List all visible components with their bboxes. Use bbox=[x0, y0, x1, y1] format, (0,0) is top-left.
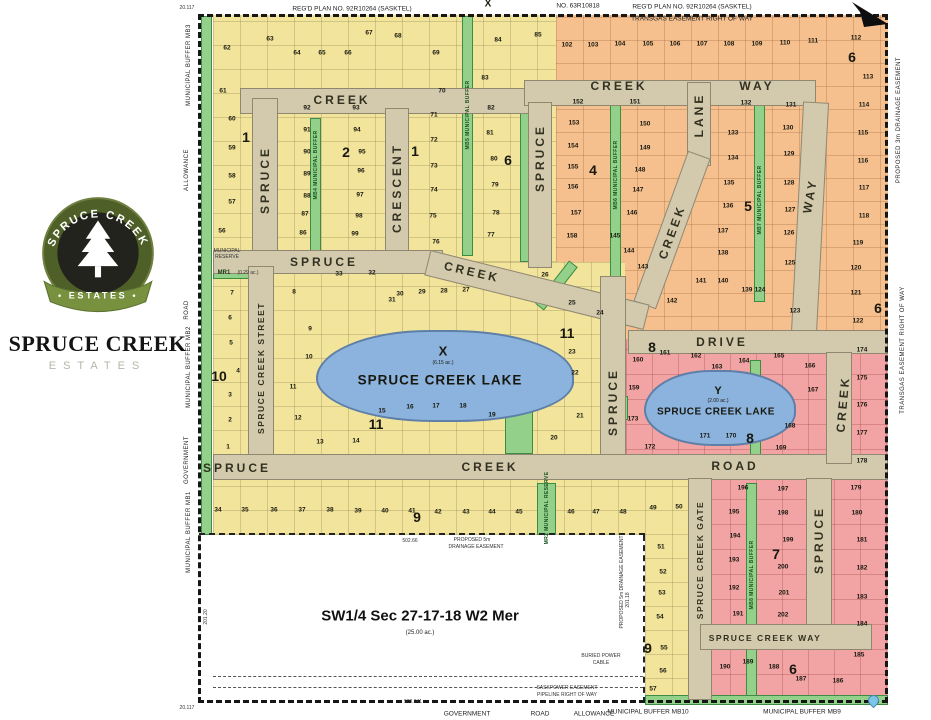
lot-number: 186 bbox=[833, 678, 844, 685]
lot-number: 16 bbox=[406, 404, 413, 411]
lot-number: 120 bbox=[851, 265, 862, 272]
lot-number: 13 bbox=[316, 439, 323, 446]
lot-number: 64 bbox=[293, 50, 300, 57]
lot-number: 71 bbox=[430, 112, 437, 119]
lot-number: 97 bbox=[356, 192, 363, 199]
lot-number: 141 bbox=[696, 278, 707, 285]
lot-number: 31 bbox=[388, 297, 395, 304]
annotation: REG'D PLAN NO. 92R10264 (SASKTEL) bbox=[632, 4, 751, 11]
lot-number: 56 bbox=[659, 668, 666, 675]
lot-number: 143 bbox=[638, 264, 649, 271]
lot-number: 30 bbox=[396, 291, 403, 298]
lot-number: 26 bbox=[541, 272, 548, 279]
street-label: SPRUCE bbox=[606, 368, 620, 436]
lot-number: 78 bbox=[492, 210, 499, 217]
lot-number: 176 bbox=[857, 402, 868, 409]
street-label: WAY bbox=[739, 79, 774, 93]
annotation: 20.117 bbox=[180, 5, 195, 11]
lot-number: 75 bbox=[429, 213, 436, 220]
lot-number: 140 bbox=[718, 278, 729, 285]
lot-number: 106 bbox=[670, 41, 681, 48]
lot-number: 44 bbox=[488, 509, 495, 516]
lot-number: 19 bbox=[488, 412, 495, 419]
lot-number: 196 bbox=[738, 485, 749, 492]
lot-number: 6 bbox=[228, 315, 232, 322]
annotation: PIPELINE RIGHT OF WAY bbox=[537, 692, 597, 698]
lot-number: 151 bbox=[630, 99, 641, 106]
lot-number: 118 bbox=[859, 213, 870, 220]
lot-number: 178 bbox=[857, 458, 868, 465]
lot-number: 132 bbox=[741, 100, 752, 107]
annotation: 503.041 bbox=[404, 699, 422, 705]
lot-number: 94 bbox=[353, 127, 360, 134]
lot-number: 42 bbox=[434, 509, 441, 516]
lot-number: 34 bbox=[214, 507, 221, 514]
street-label: SPRUCE bbox=[812, 506, 826, 574]
lot-number: 90 bbox=[303, 149, 310, 156]
logo-badge-icon: SPRUCE CREEK • ESTATES • bbox=[32, 190, 164, 322]
lot-number: 73 bbox=[430, 163, 437, 170]
annotation: MUNICIPAL BUFFER MB10 bbox=[607, 709, 688, 716]
lot-number: 14 bbox=[352, 438, 359, 445]
lot-number: 83 bbox=[481, 75, 488, 82]
lot-number: 82 bbox=[487, 105, 494, 112]
block-number: 7 bbox=[772, 546, 780, 562]
lot-number: 15 bbox=[378, 408, 385, 415]
lot-number: 93 bbox=[352, 105, 359, 112]
lot-number: 74 bbox=[430, 187, 437, 194]
lot-number: 29 bbox=[418, 289, 425, 296]
lot-number: 156 bbox=[568, 184, 579, 191]
lot-number: 193 bbox=[729, 557, 740, 564]
lot-number: 119 bbox=[853, 240, 864, 247]
lot-number: 115 bbox=[858, 130, 869, 137]
lot-number: 57 bbox=[649, 686, 656, 693]
lot-number: 173 bbox=[628, 416, 639, 423]
annotation: MB8 MUNICIPAL BUFFER bbox=[749, 541, 755, 610]
lot-number: 104 bbox=[615, 41, 626, 48]
block-number: 4 bbox=[589, 162, 597, 178]
street-label: CREEK bbox=[590, 79, 647, 93]
lot-number: 124 bbox=[755, 287, 766, 294]
lot-number: 27 bbox=[462, 287, 469, 294]
street-label: SPRUCE bbox=[203, 461, 271, 475]
lot-number: 85 bbox=[534, 32, 541, 39]
logo-ribbon-text: • ESTATES • bbox=[57, 291, 137, 301]
lot-number: 142 bbox=[667, 298, 678, 305]
street-label: CREEK bbox=[313, 93, 370, 107]
lot-number: 166 bbox=[805, 363, 816, 370]
lot-number: 17 bbox=[432, 403, 439, 410]
lot-number: 9 bbox=[308, 326, 312, 333]
lot-number: 62 bbox=[223, 45, 230, 52]
block-number: 8 bbox=[648, 339, 656, 355]
street-label: SPRUCE CREEK WAY bbox=[709, 633, 821, 643]
lot-number: 138 bbox=[718, 250, 729, 257]
lot-number: 153 bbox=[569, 120, 580, 127]
lot-number: 108 bbox=[724, 41, 735, 48]
lot-number: 4 bbox=[236, 368, 240, 375]
annotation: MUNICIPAL BUFFER MB2 bbox=[186, 326, 192, 408]
lot-number: 201 bbox=[779, 590, 790, 597]
lot-number: 76 bbox=[432, 239, 439, 246]
lot-number: 189 bbox=[743, 659, 754, 666]
lot-number: 200 bbox=[778, 564, 789, 571]
lot-number: 183 bbox=[857, 594, 868, 601]
lot-number: 36 bbox=[270, 507, 277, 514]
block-number: 8 bbox=[746, 430, 754, 446]
lot-number: 28 bbox=[440, 288, 447, 295]
annotation: PROPOSED 5m bbox=[454, 537, 491, 543]
lot-number: 58 bbox=[228, 173, 235, 180]
lot-number: 18 bbox=[459, 403, 466, 410]
annotation: CABLE bbox=[593, 660, 609, 666]
lot-number: 41 bbox=[408, 508, 415, 515]
annotation: 201.18 bbox=[625, 592, 631, 607]
lot-number: 159 bbox=[629, 385, 640, 392]
lot-number: 110 bbox=[780, 40, 791, 47]
lot-number: 49 bbox=[649, 505, 656, 512]
lot-number: 131 bbox=[786, 102, 797, 109]
lot-number: 145 bbox=[610, 233, 621, 240]
plat-map-page: SPRUCE CREEK • ESTATES • SPRUCE CREEK ES… bbox=[0, 0, 931, 720]
lot-number: 25 bbox=[568, 300, 575, 307]
annotation: GOVERNMENT bbox=[184, 436, 190, 484]
lot-number: 177 bbox=[857, 430, 868, 437]
annotation: PROPOSED 5m DRAINAGE EASEMENT bbox=[619, 535, 625, 628]
lot-number: 122 bbox=[853, 318, 864, 325]
lot-number: 8 bbox=[292, 289, 296, 296]
lot-number: 179 bbox=[851, 485, 862, 492]
lot-number: 111 bbox=[808, 38, 818, 45]
lot-number: 190 bbox=[720, 664, 731, 671]
lot-number: 12 bbox=[294, 415, 301, 422]
annotation: MUNICIPAL BUFFER MB9 bbox=[763, 709, 841, 716]
lot-number: 5 bbox=[229, 340, 233, 347]
lot-number: 144 bbox=[624, 248, 635, 255]
annotation: TRANSGAS EASEMENT RIGHT OF WAY bbox=[631, 16, 753, 23]
annotation: GOVERNMENT bbox=[444, 711, 491, 718]
lot-number: 89 bbox=[303, 171, 310, 178]
lot-number: 66 bbox=[344, 50, 351, 57]
block-number: 9 bbox=[644, 640, 652, 656]
lot-number: 1 bbox=[226, 444, 230, 451]
lot-number: 198 bbox=[778, 510, 789, 517]
lot-number: 160 bbox=[633, 357, 644, 364]
lot-number: 80 bbox=[490, 156, 497, 163]
lot-number: 123 bbox=[790, 308, 801, 315]
lot-number: 81 bbox=[486, 130, 493, 137]
annotation: MUNICIPAL BUFFER MB3 bbox=[186, 24, 192, 106]
lot-number: 129 bbox=[784, 151, 795, 158]
lot-number: 146 bbox=[627, 210, 638, 217]
lot-number: 148 bbox=[635, 167, 646, 174]
lot-number: 92 bbox=[303, 105, 310, 112]
annotation: ROAD bbox=[531, 711, 550, 718]
lot-number: 46 bbox=[567, 509, 574, 516]
lot-number: 79 bbox=[491, 182, 498, 189]
lot-number: 55 bbox=[660, 645, 667, 652]
lot-number: 184 bbox=[857, 621, 868, 628]
lot-number: 112 bbox=[851, 35, 862, 42]
lot-number: 57 bbox=[228, 199, 235, 206]
lot-number: 165 bbox=[774, 353, 785, 360]
lot-number: 171 bbox=[700, 433, 711, 440]
lot-number: 152 bbox=[573, 99, 584, 106]
spruce-creek-logo: SPRUCE CREEK • ESTATES • SPRUCE CREEK ES… bbox=[0, 190, 195, 372]
lot-number: 158 bbox=[567, 233, 578, 240]
lot-number: 192 bbox=[729, 585, 740, 592]
block-number: 6 bbox=[874, 300, 882, 316]
lot-number: 169 bbox=[776, 445, 787, 452]
lot-number: 133 bbox=[728, 130, 739, 137]
lot-number: 2 bbox=[228, 417, 232, 424]
lot-number: 63 bbox=[266, 36, 273, 43]
lot-number: 11 bbox=[290, 384, 297, 391]
lot-number: 175 bbox=[857, 375, 868, 382]
lot-number: 174 bbox=[857, 347, 868, 354]
lot-number: 60 bbox=[228, 116, 235, 123]
lot-number: 99 bbox=[351, 231, 358, 238]
lot-number: 96 bbox=[357, 168, 364, 175]
lot-number: 121 bbox=[851, 290, 862, 297]
lot-number: 157 bbox=[571, 210, 582, 217]
lot-number: 127 bbox=[785, 207, 796, 214]
annotation: 201.20 bbox=[203, 609, 209, 624]
lot-number: 117 bbox=[859, 185, 870, 192]
lot-number: 23 bbox=[568, 349, 575, 356]
lot-number: 162 bbox=[691, 353, 702, 360]
north-arrow-icon bbox=[850, 0, 894, 30]
lot-number: 126 bbox=[784, 230, 795, 237]
lot-number: 114 bbox=[859, 102, 870, 109]
lot-number: 56 bbox=[218, 228, 225, 235]
annotation: 20.117 bbox=[180, 705, 195, 711]
lot-number: 167 bbox=[808, 387, 819, 394]
lot-number: 95 bbox=[358, 149, 365, 156]
lot-number: 61 bbox=[219, 88, 226, 95]
lot-number: 54 bbox=[656, 614, 663, 621]
annotation: RESERVE bbox=[215, 254, 239, 260]
lot-number: 154 bbox=[568, 143, 579, 150]
lot-number: 22 bbox=[571, 370, 578, 377]
lot-number: 21 bbox=[576, 413, 583, 420]
lot-number: 170 bbox=[726, 433, 737, 440]
annotation: MUNICIPAL BUFFER MB1 bbox=[186, 491, 192, 573]
lot-number: 39 bbox=[354, 508, 361, 515]
lot-number: 38 bbox=[326, 507, 333, 514]
lot-number: 125 bbox=[785, 260, 796, 267]
lot-number: 128 bbox=[784, 180, 795, 187]
lot-number: 35 bbox=[241, 507, 248, 514]
lot-number: 182 bbox=[857, 565, 868, 572]
lot-number: 86 bbox=[299, 230, 306, 237]
lot-number: 65 bbox=[318, 50, 325, 57]
annotation: MR1 bbox=[218, 270, 231, 276]
annotation: DRAINAGE EASEMENT bbox=[448, 544, 503, 550]
lot-number: 195 bbox=[729, 509, 740, 516]
lot-number: 172 bbox=[645, 444, 656, 451]
street-label: SPRUCE bbox=[258, 146, 272, 214]
street-label: SPRUCE CREEK STREET bbox=[256, 302, 266, 434]
lot-number: 40 bbox=[381, 508, 388, 515]
lot-number: 116 bbox=[858, 158, 869, 165]
annotation: MB5 MUNICIPAL BUFFER bbox=[465, 81, 471, 150]
lot-number: 88 bbox=[303, 193, 310, 200]
lot-number: 109 bbox=[752, 41, 763, 48]
lot-number: 70 bbox=[438, 88, 445, 95]
lot-number: 37 bbox=[298, 507, 305, 514]
block-number: 6 bbox=[504, 152, 512, 168]
lot-number: 185 bbox=[854, 652, 865, 659]
lot-number: 180 bbox=[852, 510, 863, 517]
annotation: MR2 MUNICIPAL RESERVE bbox=[544, 472, 550, 545]
lot-number: 32 bbox=[368, 270, 375, 277]
lot-number: 137 bbox=[718, 228, 729, 235]
lot-number: 197 bbox=[778, 486, 789, 493]
annotation: (0.29 ac.) bbox=[237, 270, 258, 276]
lot-number: 43 bbox=[462, 509, 469, 516]
block-number: 11 bbox=[369, 416, 384, 432]
annotation: BURIED POWER bbox=[581, 653, 620, 659]
annotation: MB4 MUNICIPAL BUFFER bbox=[313, 131, 319, 200]
lot-number: 84 bbox=[494, 37, 501, 44]
lot-number: 113 bbox=[863, 74, 874, 81]
annotation: ROAD bbox=[184, 300, 190, 319]
street-label: ROAD bbox=[711, 459, 758, 473]
lot-number: 52 bbox=[659, 569, 666, 576]
block-number: 10 bbox=[211, 368, 227, 384]
lot-number: 87 bbox=[301, 211, 308, 218]
lot-number: 77 bbox=[487, 232, 494, 239]
street-label: SPRUCE bbox=[533, 124, 547, 192]
annotation: X bbox=[485, 0, 492, 10]
street-label: DRIVE bbox=[696, 335, 748, 349]
annotation: SASKPOWER EASEMENT bbox=[536, 685, 597, 691]
block-number: 5 bbox=[744, 198, 752, 214]
lot-number: 147 bbox=[633, 187, 644, 194]
lot-number: 202 bbox=[778, 612, 789, 619]
lot-number: 130 bbox=[783, 125, 794, 132]
lot-number: 69 bbox=[432, 50, 439, 57]
lot-number: 59 bbox=[228, 145, 235, 152]
lot-number: 105 bbox=[643, 41, 654, 48]
lot-number: 3 bbox=[228, 392, 232, 399]
lot-number: 20 bbox=[550, 435, 557, 442]
lot-number: 45 bbox=[515, 509, 522, 516]
lot-number: 181 bbox=[857, 537, 868, 544]
lot-number: 135 bbox=[724, 180, 735, 187]
lot-number: 67 bbox=[365, 30, 372, 37]
lot-number: 168 bbox=[785, 423, 796, 430]
block-number: 11 bbox=[560, 325, 575, 341]
block-number: 1 bbox=[411, 143, 419, 159]
street-label: SPRUCE bbox=[290, 255, 358, 269]
logo-subtitle: ESTATES bbox=[0, 360, 195, 372]
annotation: MB6 MUNICIPAL BUFFER bbox=[613, 141, 619, 210]
annotation: MB7 MUNICIPAL BUFFER bbox=[757, 166, 763, 235]
annotation: PROPOSED 3m DRAINAGE EASEMENT bbox=[896, 57, 902, 183]
lot-number: 134 bbox=[728, 155, 739, 162]
street-label: SPRUCE CREEK GATE bbox=[695, 501, 705, 619]
lot-number: 102 bbox=[562, 42, 573, 49]
annotation: SW1/4 Sec 27-17-18 W2 Mer bbox=[321, 608, 519, 625]
block-number: 2 bbox=[342, 144, 350, 160]
lot-number: 191 bbox=[733, 611, 744, 618]
lot-number: 47 bbox=[592, 509, 599, 516]
lot-number: 150 bbox=[640, 121, 651, 128]
logo-title: SPRUCE CREEK bbox=[0, 331, 195, 357]
annotation: ALLOWANCE bbox=[184, 149, 190, 191]
lot-number: 91 bbox=[303, 127, 310, 134]
lot-number: 51 bbox=[657, 544, 664, 551]
lot-number: 136 bbox=[723, 203, 734, 210]
lot-number: 163 bbox=[712, 364, 723, 371]
lot-number: 53 bbox=[658, 590, 665, 597]
lot-number: 161 bbox=[660, 350, 671, 357]
lot-number: 50 bbox=[675, 504, 682, 511]
lot-number: 33 bbox=[335, 271, 342, 278]
street-label: LANE bbox=[692, 93, 706, 138]
annotation: REG'D PLAN NO. 92R10264 (SASKTEL) bbox=[292, 6, 411, 13]
lot-number: 24 bbox=[596, 310, 603, 317]
annotation: (25.00 ac.) bbox=[406, 630, 435, 636]
lot-number: 72 bbox=[430, 137, 437, 144]
lot-number: 98 bbox=[355, 213, 362, 220]
lot-number: 139 bbox=[742, 287, 753, 294]
lot-number: 194 bbox=[730, 533, 741, 540]
street-label: CREEK bbox=[461, 460, 518, 474]
block-number: 6 bbox=[848, 49, 856, 65]
lot-number: 149 bbox=[640, 145, 651, 152]
lot-number: 10 bbox=[305, 354, 312, 361]
lot-number: 48 bbox=[619, 509, 626, 516]
annotation: 502.66 bbox=[402, 538, 417, 544]
lot-number: 187 bbox=[796, 676, 807, 683]
lot-number: 103 bbox=[588, 42, 599, 49]
block-number: 1 bbox=[242, 129, 250, 145]
lot-number: 7 bbox=[230, 290, 234, 297]
lot-number: 68 bbox=[394, 33, 401, 40]
street-label: CRESCENT bbox=[390, 143, 404, 233]
lot-number: 199 bbox=[783, 537, 794, 544]
lot-number: 107 bbox=[697, 41, 708, 48]
lot-number: 188 bbox=[769, 664, 780, 671]
lot-number: 155 bbox=[568, 164, 579, 171]
annotation: NO. 63R10818 bbox=[556, 3, 599, 10]
lot-number: 164 bbox=[739, 358, 750, 365]
annotation: TRANSGAS EASEMENT RIGHT OF WAY bbox=[900, 286, 906, 413]
